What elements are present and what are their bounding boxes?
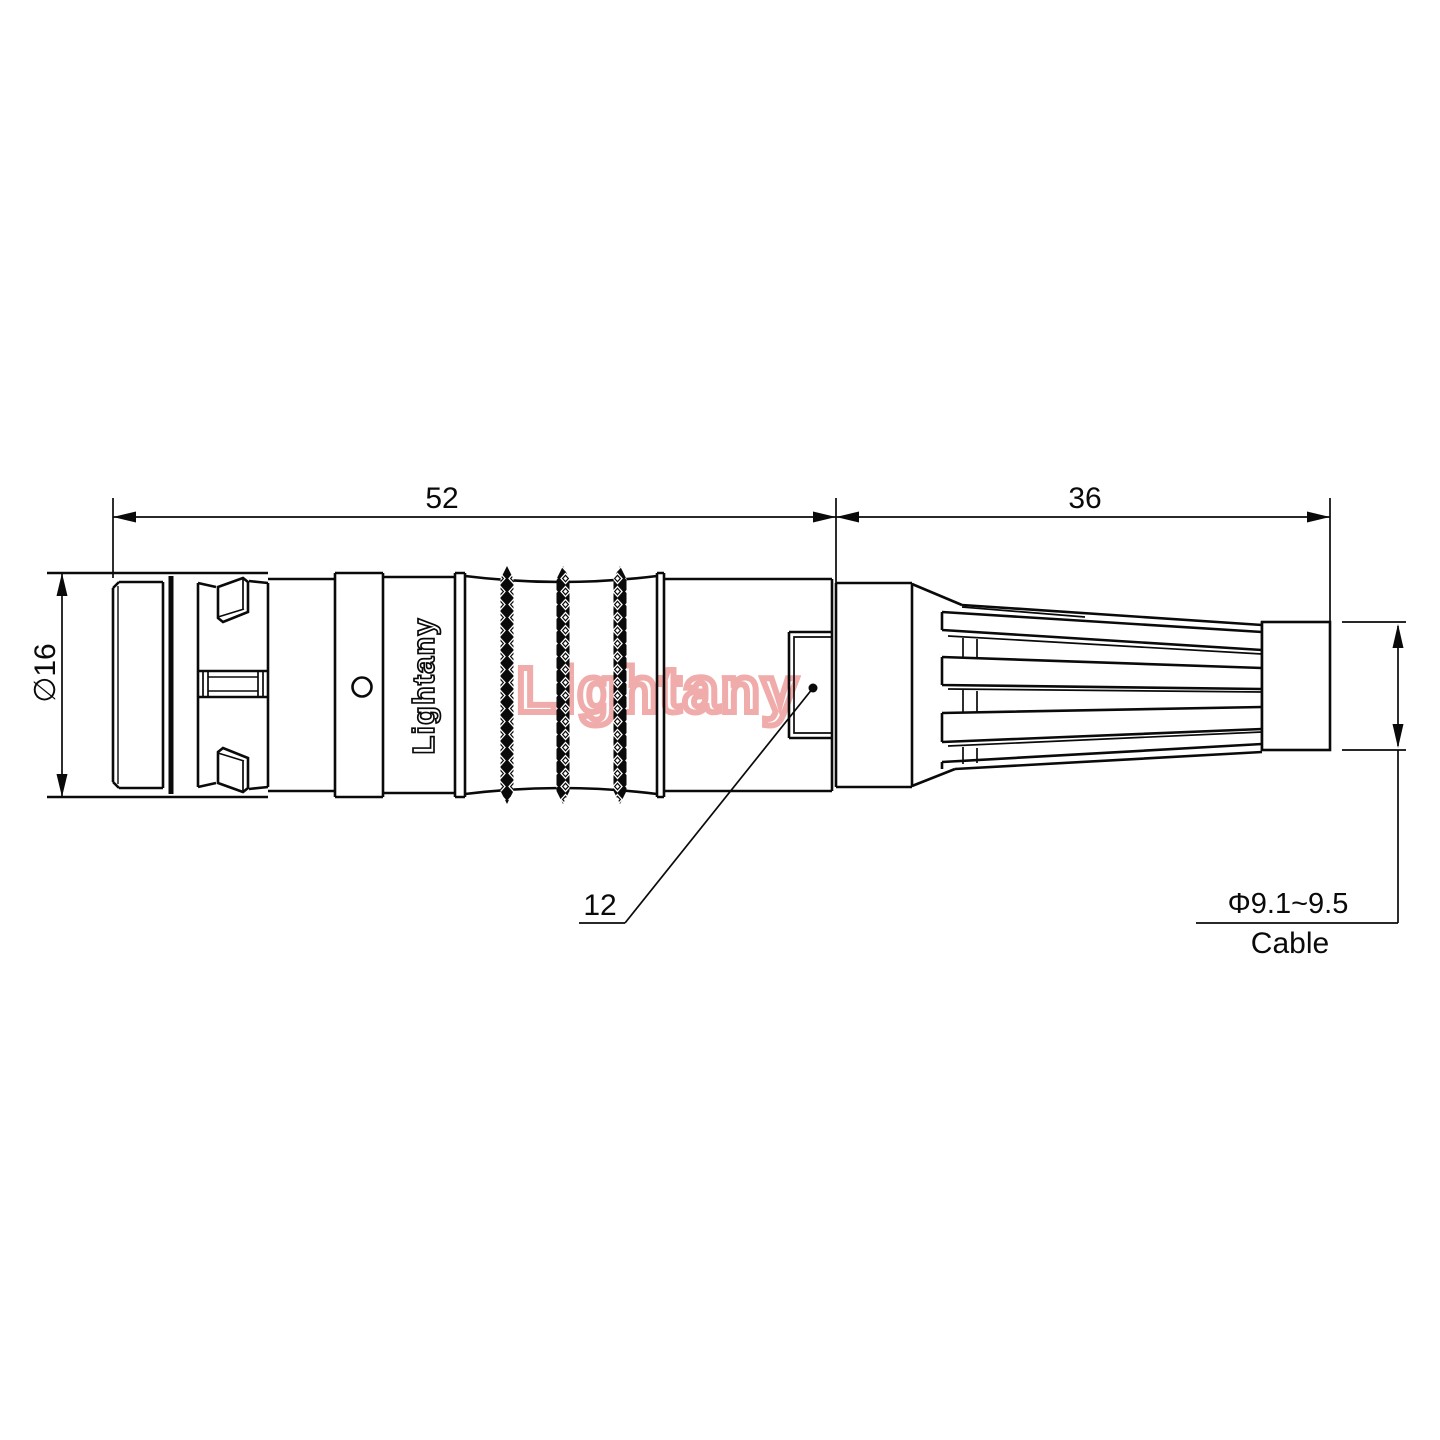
technical-drawing: Lightany (0, 0, 1440, 1440)
dim-rear-length-value: 36 (1068, 482, 1101, 515)
knurl-band (614, 566, 627, 804)
latch-key-top (218, 578, 248, 622)
brand-label: Lightany (406, 617, 441, 754)
dimension-rear-length: 36 (836, 482, 1330, 622)
dim-front-length-value: 52 (425, 482, 458, 515)
dim-cable-diameter-value: Φ9.1~9.5 (1228, 888, 1349, 920)
dimension-front-length: 52 (113, 482, 836, 583)
cable-label: Cable (1251, 927, 1329, 960)
dimension-diameter: ∅16 (29, 573, 68, 797)
collar-band (335, 573, 383, 797)
dim-diameter-value: ∅16 (29, 643, 62, 703)
dim-window-value: 12 (583, 889, 616, 922)
bayonet-slot-section (198, 578, 268, 792)
knurl-band (501, 566, 514, 804)
front-ring (113, 576, 171, 794)
knurl-band (557, 566, 570, 804)
alignment-hole (353, 678, 372, 697)
strain-relief-boot (836, 583, 1262, 787)
latch-key-bottom (218, 748, 248, 792)
cable-stub (1262, 622, 1330, 750)
leader-dot (809, 684, 818, 693)
drawing-canvas: Lightany (0, 0, 1440, 1440)
